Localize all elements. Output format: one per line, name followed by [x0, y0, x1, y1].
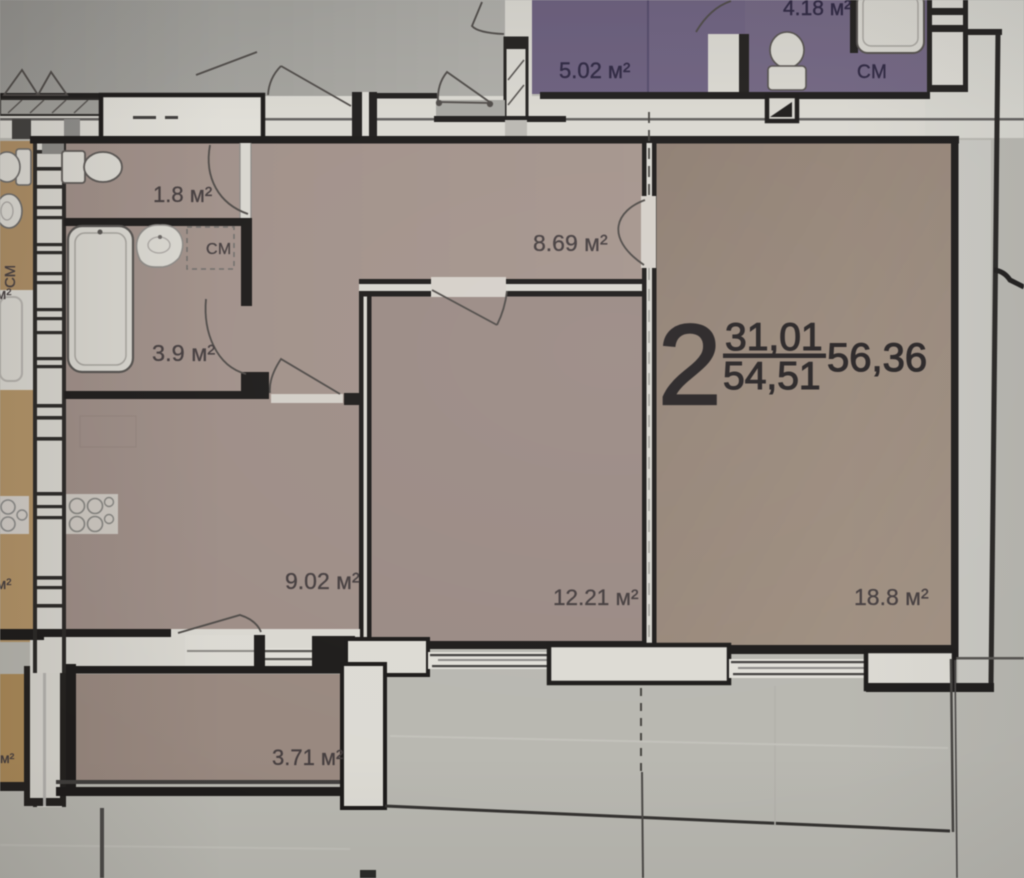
svg-text:СМ: СМ — [857, 62, 887, 83]
svg-text:8.69 м²: 8.69 м² — [533, 230, 608, 256]
svg-text:4.18 м²: 4.18 м² — [783, 0, 851, 20]
svg-text:54,51: 54,51 — [723, 355, 821, 398]
svg-text:3.71 м²: 3.71 м² — [272, 745, 343, 770]
svg-text:9.02 м²: 9.02 м² — [285, 568, 360, 594]
svg-text:м²: м² — [0, 576, 11, 593]
svg-text:1.8 м²: 1.8 м² — [153, 182, 212, 207]
svg-text:СМ: СМ — [206, 241, 232, 258]
svg-text:3.9 м²: 3.9 м² — [152, 340, 215, 366]
svg-text:56,36: 56,36 — [827, 336, 927, 380]
svg-text:СМ: СМ — [2, 265, 19, 288]
svg-text:12.21 м²: 12.21 м² — [553, 585, 639, 610]
svg-text:м²: м² — [0, 750, 15, 766]
svg-text:31,01: 31,01 — [725, 316, 823, 359]
svg-text:5.02 м²: 5.02 м² — [559, 58, 630, 83]
svg-text:18.8 м²: 18.8 м² — [854, 584, 929, 610]
svg-text:2: 2 — [658, 302, 721, 429]
